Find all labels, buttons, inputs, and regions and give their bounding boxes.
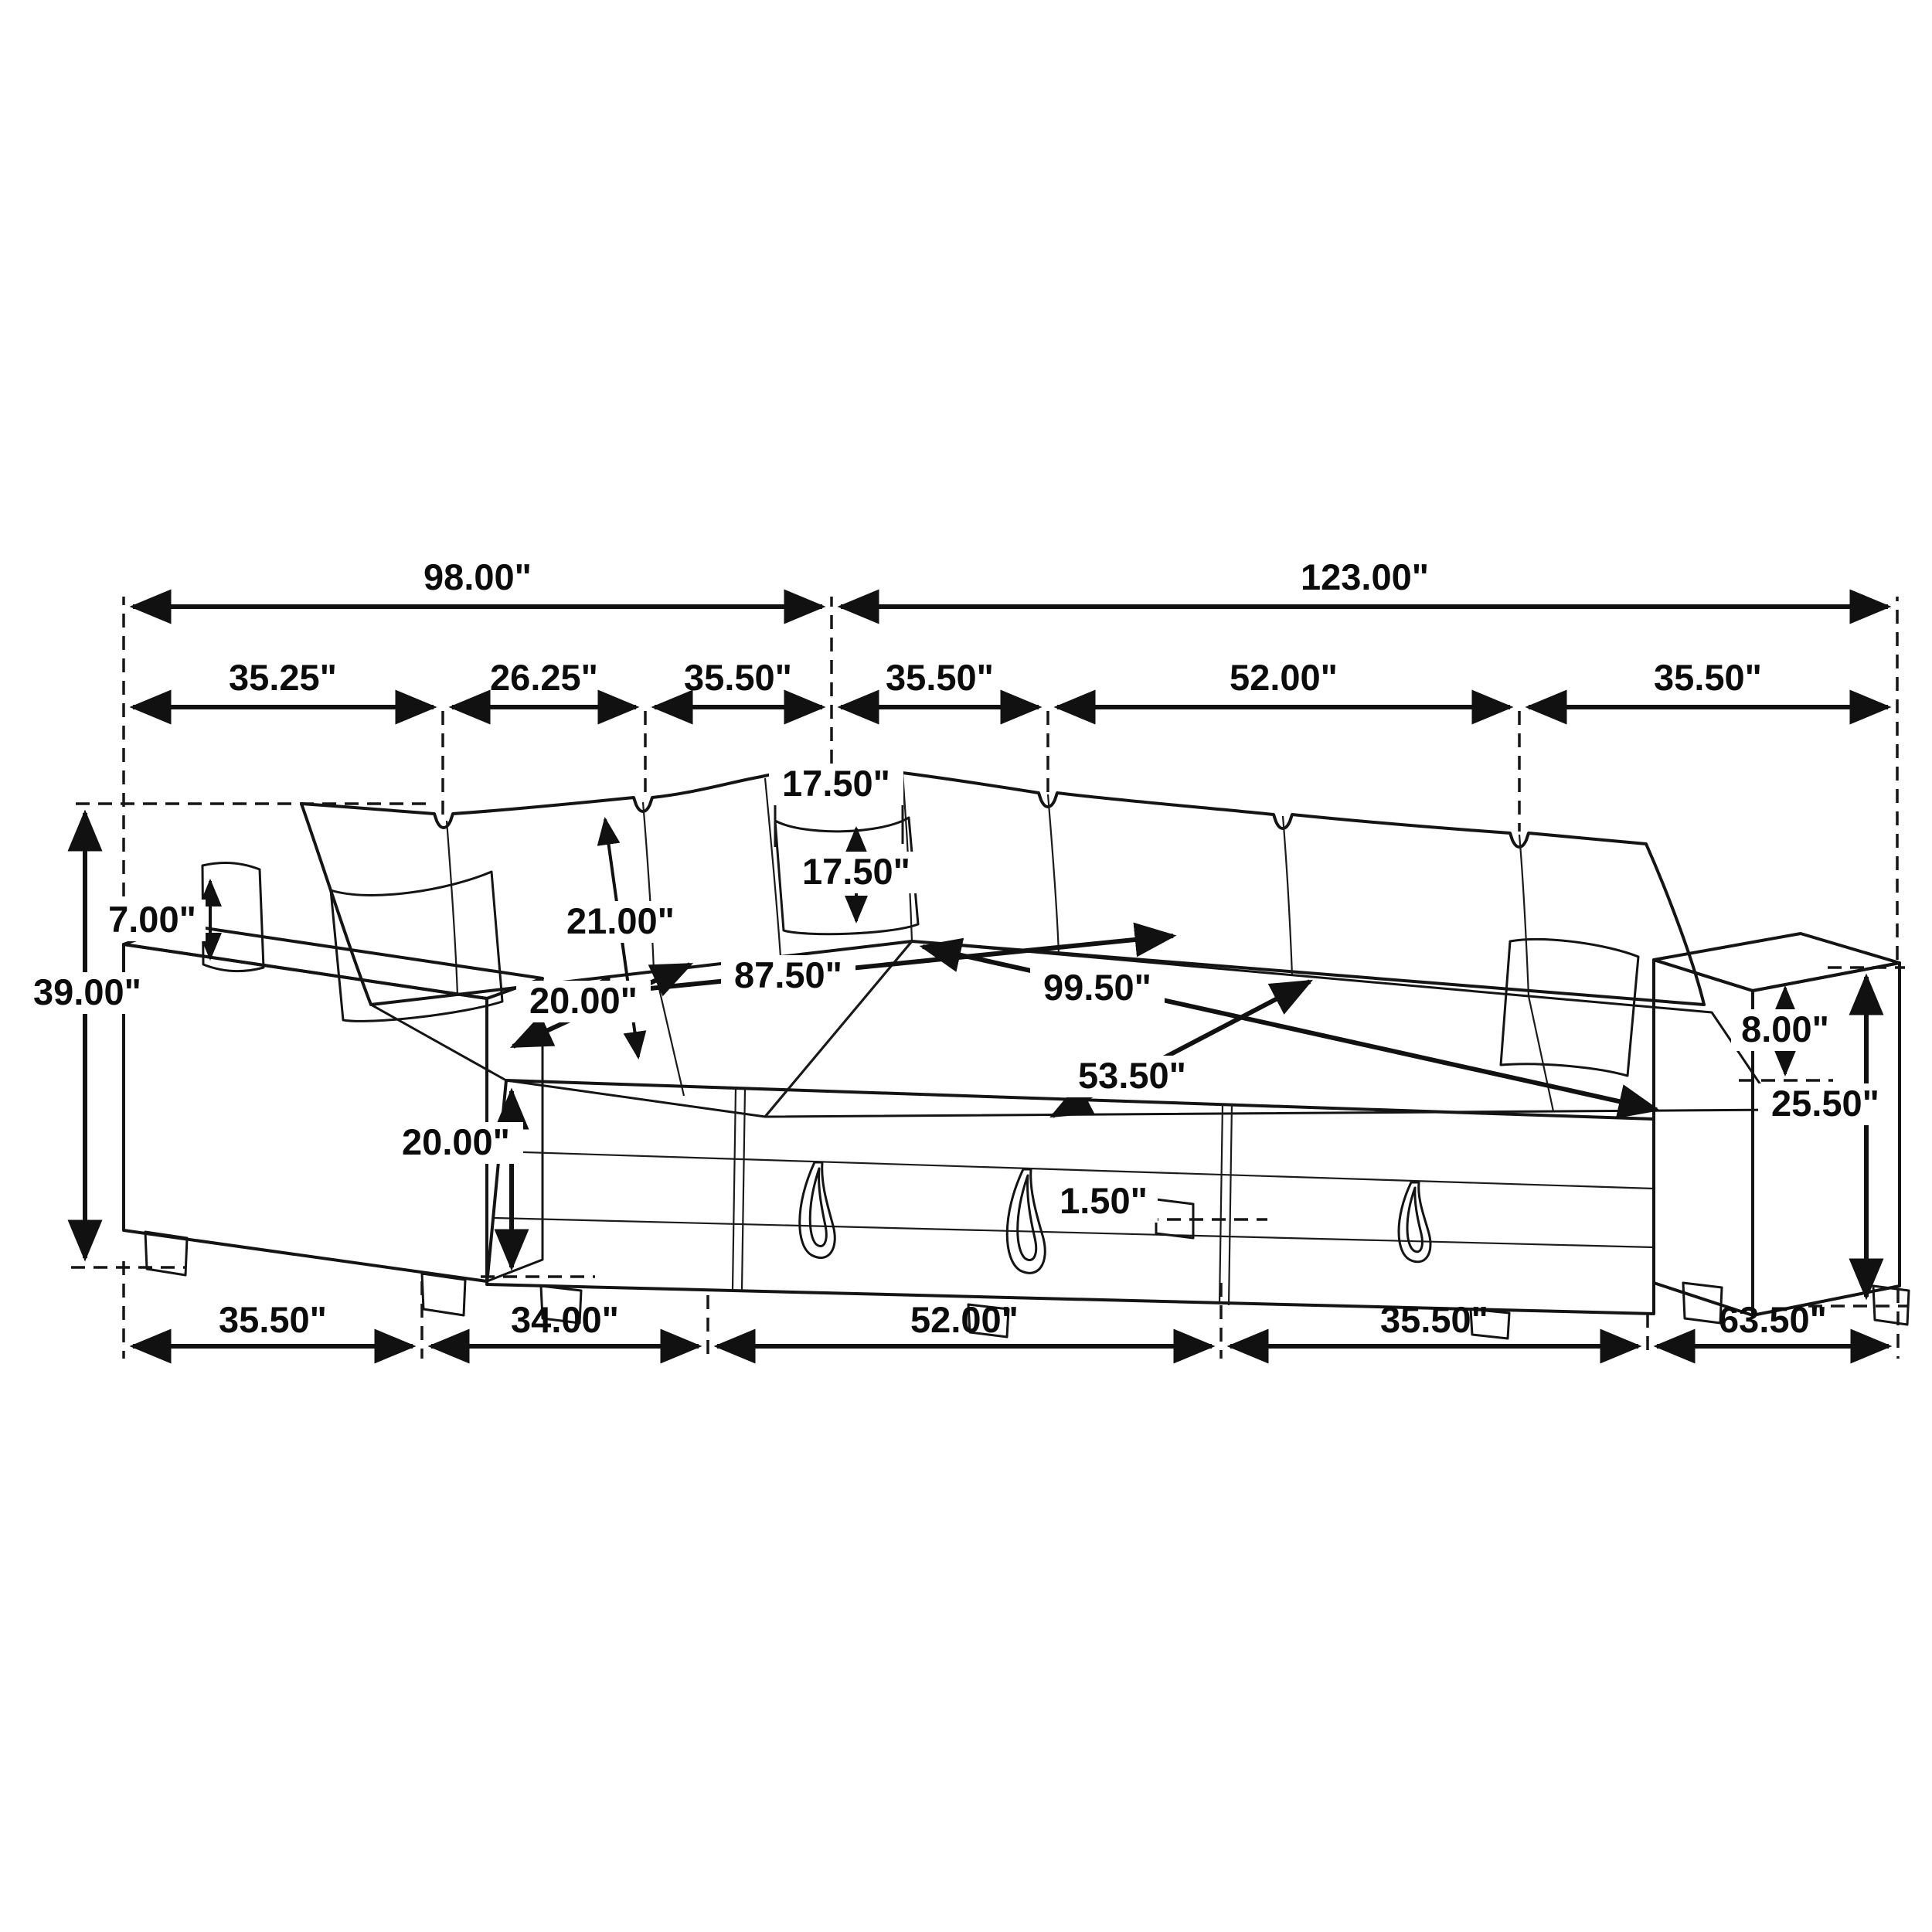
dimension-labels: 98.00" 123.00" 35.25" 26.25" 35.50" 35.5… (33, 556, 1879, 1340)
seat-deck-right (765, 941, 1777, 1117)
label-seg-arm-right: 35.50" (1654, 657, 1762, 698)
label-seat-depth: 20.00" (529, 980, 638, 1021)
label-bottom-chaise: 34.00" (511, 1299, 619, 1340)
label-bottom-arm-left: 35.50" (219, 1299, 327, 1340)
fascia-division (733, 1088, 745, 1290)
label-pillow-above-arm: 7.00" (108, 899, 196, 940)
label-arm-height-right: 25.50" (1771, 1083, 1879, 1124)
cushion-seam (1283, 816, 1292, 975)
pull-handle (800, 1162, 835, 1258)
deck-panel-seam (655, 972, 684, 1096)
fascia-division (1219, 1104, 1232, 1305)
label-bed-length-left: 87.50" (734, 954, 842, 995)
label-seg-seat-a: 26.25" (490, 657, 598, 698)
pull-handle (1399, 1182, 1430, 1262)
label-seg-corner: 35.50" (886, 657, 994, 698)
label-seg-right-mid: 52.00" (1230, 657, 1338, 698)
label-bottom-bed: 52.00" (910, 1299, 1019, 1340)
pull-handle (1007, 1169, 1045, 1273)
cushion-seam (1048, 794, 1059, 954)
pillow-right (1501, 939, 1638, 1076)
sectional-sofa-dimension-diagram: 98.00" 123.00" 35.25" 26.25" 35.50" 35.5… (0, 0, 1932, 1932)
label-leg-clearance: 1.50" (1060, 1180, 1148, 1221)
backrest (301, 767, 1704, 1005)
cushion-seam (447, 821, 457, 996)
label-bottom-ottoman: 35.50" (1380, 1299, 1488, 1340)
left-arm-outer-face (124, 944, 487, 1281)
diagram-canvas: 98.00" 123.00" 35.25" 26.25" 35.50" 35.5… (0, 0, 1932, 1932)
label-back-height: 21.00" (566, 900, 675, 941)
label-seg-seat-b: 35.50" (684, 657, 792, 698)
deck-panel-seam (1529, 996, 1553, 1111)
label-bottom-right-depth: 63.50" (1719, 1299, 1827, 1340)
label-arm-above-seat: 8.00" (1741, 1009, 1829, 1049)
label-bed-width: 53.50" (1078, 1055, 1186, 1096)
dimension-lines (85, 607, 1889, 1346)
label-pillow-height: 17.50" (802, 851, 910, 892)
cushion-seam (643, 802, 654, 971)
label-bed-length-right: 99.50" (1043, 967, 1151, 1008)
cushion-seam (1519, 835, 1529, 996)
label-pillow-width: 17.50" (782, 763, 890, 804)
label-top-total-right: 123.00" (1301, 556, 1429, 597)
label-backgrounds (22, 765, 1893, 1223)
label-seg-arm-left: 35.25" (229, 657, 337, 698)
label-overall-height: 39.00" (33, 971, 141, 1012)
sofa-drawing (124, 767, 1909, 1338)
label-top-total-left: 98.00" (423, 556, 532, 597)
label-seat-height: 20.00" (402, 1121, 510, 1162)
